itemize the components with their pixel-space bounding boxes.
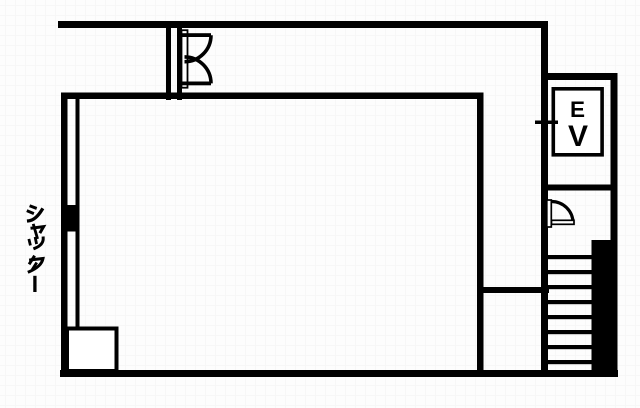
svg-text:E: E (570, 97, 585, 122)
svg-text:V: V (568, 120, 588, 153)
